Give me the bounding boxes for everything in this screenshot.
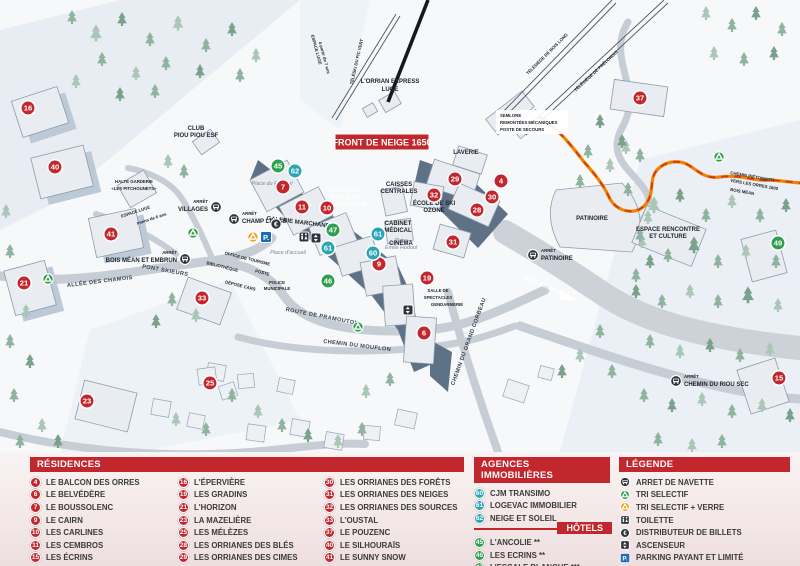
marker-badge: 46 [474,550,485,561]
marker-badge: 23 [178,515,189,526]
marker-residence-31: 31 [446,235,460,249]
recycle-green-icon [619,489,631,501]
marker-badge: 6 [30,489,41,500]
svg-text:60: 60 [369,249,377,258]
legend-item: 19LES GRADINS [178,489,324,502]
marker-agence-62: 62 [288,164,302,178]
svg-text:7: 7 [281,183,285,192]
marker-badge: 30 [324,477,335,488]
marker-badge: 61 [474,500,485,511]
legend-item: 15LES ÉCRINS [30,552,178,565]
svg-text:15: 15 [775,374,784,383]
label-arret: ARRÊT [242,211,257,216]
marker-residence-21: 21 [17,276,31,290]
label-arret: ARRÊT [684,374,699,379]
toilet-icon [619,514,631,526]
label-arret-patinoire: PATINOIRE [541,256,573,262]
svg-text:P.: P. [622,555,627,562]
legend-item: ARRET DE NAVETTE [619,476,790,489]
label-arret: ARRÊT [193,199,208,204]
label-halte-garderie-2: «LES PITCHOUNETS» [111,186,157,191]
legend-item: 61LOGEVAC IMMOBILIER [474,500,610,513]
svg-text:9: 9 [377,260,381,269]
label-gendarmerie: GENDARMERIE [431,302,463,307]
svg-text:29: 29 [451,175,459,184]
label-la-bulle: LA BULLE [330,188,359,194]
label-arret: ARRÊT [541,248,556,253]
legend-item: 32LES ORRIANES DES SOURCES [324,501,464,514]
marker-hotel-47: 47 [326,223,340,237]
marker-residence-15: 15 [772,371,786,385]
parking-icon: P. [619,552,631,564]
recycle-green-icon [43,274,53,284]
marker-badge: 19 [178,489,189,500]
svg-text:P.: P. [263,233,269,242]
marker-badge: 33 [324,515,335,526]
svg-text:45: 45 [274,162,283,171]
bus-icon [180,254,191,265]
svg-text:47: 47 [329,226,337,235]
svg-text:16: 16 [24,104,32,113]
marker-badge: 16 [178,477,189,488]
legende-section: LÉGENDE ARRET DE NAVETTE TRI SELECTIF TR… [619,457,790,564]
label-police: POLICE [269,280,285,285]
label-club-piou-piou: CLUB [188,126,205,132]
marker-badge: 11 [30,540,41,551]
legend-panel: RÉSIDENCES 4LE BALCON DES ORRES 6LE BELV… [0,452,800,566]
marker-residence-32: 32 [427,188,441,202]
bus-icon [528,250,539,261]
legend-item: 60CJM TRANSIMO [474,487,610,500]
legend-item: 11LES CEMBROS [30,539,178,552]
bus-icon [671,376,682,387]
marker-residence-23: 23 [80,394,94,408]
svg-text:32: 32 [430,191,438,200]
svg-text:37: 37 [636,94,644,103]
svg-text:POSTE DE SECOURS: POSTE DE SECOURS [500,127,544,132]
legende-header: LÉGENDE [619,457,790,472]
marker-badge: 31 [324,489,335,500]
svg-text:11: 11 [298,203,307,212]
legend-item: TRI SELECTIF [619,489,790,502]
label-orrian-express: L'ORRIAN EXPRESS [361,79,420,85]
label-caisses-centrales: CAISSES [386,182,412,188]
label-cabinet-medical-2: MÉDICAL [384,226,412,234]
legend-item: 37LE POUZENC [324,526,464,539]
label-semlore: SEMLORE REMONTÉES MÉCANIQUES POSTE DE SE… [496,110,568,134]
marker-agence-61: 61 [321,241,335,255]
hotels-divider: HÔTELS [474,528,610,537]
recycle-glass-icon [619,501,631,513]
bus-icon [229,214,240,225]
legend-item: 6LE BELVÉDÈRE [30,489,178,502]
label-halte-garderie: HALTE GARDERIE [115,179,153,184]
agences-section: AGENCES IMMOBILIÈRES 60CJM TRANSIMO 61LO… [474,457,610,566]
building-residence-6 [403,316,436,364]
legend-item: 16L'ÉPERVIÈRE [178,476,324,489]
marker-badge: 29 [178,552,189,563]
marker-badge: 4 [30,477,41,488]
residences-section: RÉSIDENCES 4LE BALCON DES ORRES 6LE BELV… [30,457,464,564]
marker-badge: 28 [178,540,189,551]
svg-text:30: 30 [488,193,496,202]
marker-residence-25: 25 [203,376,217,390]
marker-badge: 37 [324,527,335,538]
label-chemin-riou-sec: CHEMIN DU RIOU SEC [684,382,749,388]
marker-agence-61: 61 [371,227,385,241]
toilet-icon [299,232,309,242]
svg-text:23: 23 [83,397,91,406]
svg-text:25: 25 [206,379,215,388]
svg-text:21: 21 [20,279,29,288]
marker-badge: 15 [30,552,41,563]
label-place-hodoul-2: Émile Hodoul [385,244,418,251]
marker-badge: 62 [474,513,485,524]
label-salle-spectacles-2: SPECTACLES [424,295,453,300]
atm-icon: € [271,219,281,229]
marker-residence-33: 33 [195,291,209,305]
legend-item: TRI SELECTIF + VERRE [619,501,790,514]
elevator-icon [311,233,321,243]
marker-badge: 10 [30,527,41,538]
label-laverie: LAVERIE [453,150,479,156]
front-de-neige-banner: FRONT DE NEIGE 1650 [332,134,431,150]
residences-header: RÉSIDENCES [30,457,464,472]
svg-text:31: 31 [449,238,458,247]
svg-text:SEMLORE: SEMLORE [500,113,521,118]
svg-text:61: 61 [324,244,333,253]
label-cabinet-medical: CABINET [385,221,412,227]
svg-text:10: 10 [323,204,331,213]
legend-item: 33L'OUSTAL [324,514,464,527]
label-police-2: MUNICIPALE [264,286,291,291]
legend-item: 4LE BALCON DES ORRES [30,476,178,489]
svg-text:46: 46 [324,277,332,286]
marker-residence-37: 37 [633,91,647,105]
marker-residence-7: 7 [276,180,290,194]
marker-agence-60: 60 [366,246,380,260]
legend-item: 7LE BOUSSOLENC [30,501,178,514]
legend-item: 23LA MAZELIÈRE [178,514,324,527]
banner-text: FRONT DE NEIGE 1650 [332,138,431,148]
marker-hotel-46: 46 [321,274,335,288]
svg-text:REMONTÉES MÉCANIQUES: REMONTÉES MÉCANIQUES [500,120,558,125]
label-patinoire-building: PATINOIRE [576,216,608,222]
legend-item: 25LES MÉLÈZES [178,526,324,539]
hotels-header: HÔTELS [557,522,612,534]
marker-badge: 21 [178,502,189,513]
svg-text:19: 19 [423,274,431,283]
legend-item: ASCENSEUR [619,539,790,552]
label-bois-mean-embrun: BOIS MÉAN ET EMBRUN [106,256,177,264]
marker-badge: 41 [324,552,335,563]
resort-map: ESPACE LUGE à partir de 7 ans TÉLÉSKI DU… [0,0,800,452]
marker-badge: 25 [178,527,189,538]
marker-residence-40: 40 [48,160,62,174]
label-la-bulle-2: ÉCOLE DU [329,193,360,201]
label-espace-rencontre-2: ET CULTURE [649,234,687,240]
label-club-piou-piou-2: PIOU PIOU ESF [174,133,219,139]
recycle-glass-icon [248,232,258,242]
marker-residence-30: 30 [485,190,499,204]
legend-item: 31LES ORRIANES DES NEIGES [324,489,464,502]
marker-residence-29: 29 [448,172,462,186]
svg-text:6: 6 [422,329,426,338]
marker-badge: 9 [30,515,41,526]
marker-residence-41: 41 [104,227,118,241]
recycle-green-icon [188,228,198,238]
svg-text:61: 61 [374,230,383,239]
legend-item: 28LES ORRIANES DES BLÉS [178,539,324,552]
marker-residence-16: 16 [21,101,35,115]
label-caisses-centrales-2: CENTRALES [381,189,418,195]
bus-icon [211,202,222,213]
marker-hotel-45: 45 [271,159,285,173]
legend-item: €DISTRIBUTEUR DE BILLETS [619,526,790,539]
label-arret: ARRÊT [162,250,177,255]
svg-text:40: 40 [51,163,59,172]
label-salle-spectacles: SALLE DE [427,288,448,293]
marker-residence-4: 4 [494,174,508,188]
legend-item: P.PARKING PAYANT ET LIMITÉ [619,552,790,565]
svg-text:62: 62 [291,167,299,176]
marker-residence-6: 6 [417,326,431,340]
legend-item: 21L'HORIZON [178,501,324,514]
elevator-icon [619,539,631,551]
legend-item: 47L'ESCALE BLANCHE *** [474,561,610,566]
legend-item: 10LES CARLINES [30,526,178,539]
svg-text:€: € [274,222,278,229]
resort-map-page: ESPACE LUGE à partir de 7 ans TÉLÉSKI DU… [0,0,800,566]
marker-badge: 60 [474,488,485,499]
legend-item: 29LES ORRIANES DES CIMES [178,552,324,565]
legend-item: 30LES ORRIANES DES FORÊTS [324,476,464,489]
svg-text:49: 49 [774,239,782,248]
label-orrian-express-luge: LUGE [382,87,399,93]
svg-text:33: 33 [198,294,206,303]
parking-icon: P. [261,232,272,243]
bus-icon [619,476,631,488]
label-espace-rencontre: ESPACE RENCONTRE [636,227,700,233]
marker-residence-19: 19 [420,271,434,285]
marker-residence-11: 11 [295,200,309,214]
label-place-accueil: Place d'accueil [270,250,307,256]
svg-text:28: 28 [473,206,481,215]
legend-item: 41LE SUNNY SNOW [324,552,464,565]
elevator-icon [403,305,413,315]
legend-item: 45L'ANCOLIE ** [474,537,610,549]
svg-text:41: 41 [107,230,116,239]
marker-residence-28: 28 [470,203,484,217]
marker-hotel-49: 49 [771,236,785,250]
legend-item: 9LE CAIRN [30,514,178,527]
marker-badge: 32 [324,502,335,513]
label-place-hodoul: Place [394,238,408,244]
agences-header: AGENCES IMMOBILIÈRES [474,457,610,483]
legend-item: 46LES ECRINS ** [474,549,610,561]
recycle-green-icon [714,152,724,162]
label-villages: VILLAGES [178,207,208,213]
marker-badge: 45 [474,537,485,548]
legend-item: 40LE SILHOURAÏS [324,539,464,552]
marker-badge: 47 [474,562,485,566]
label-ecole-ski-ozone-2: OZONE [423,208,444,214]
recycle-green-icon [353,322,363,332]
marker-badge: 7 [30,502,41,513]
marker-residence-10: 10 [320,201,334,215]
legend-item: TOILETTE [619,514,790,527]
marker-badge: 40 [324,540,335,551]
atm-icon: € [619,527,631,539]
